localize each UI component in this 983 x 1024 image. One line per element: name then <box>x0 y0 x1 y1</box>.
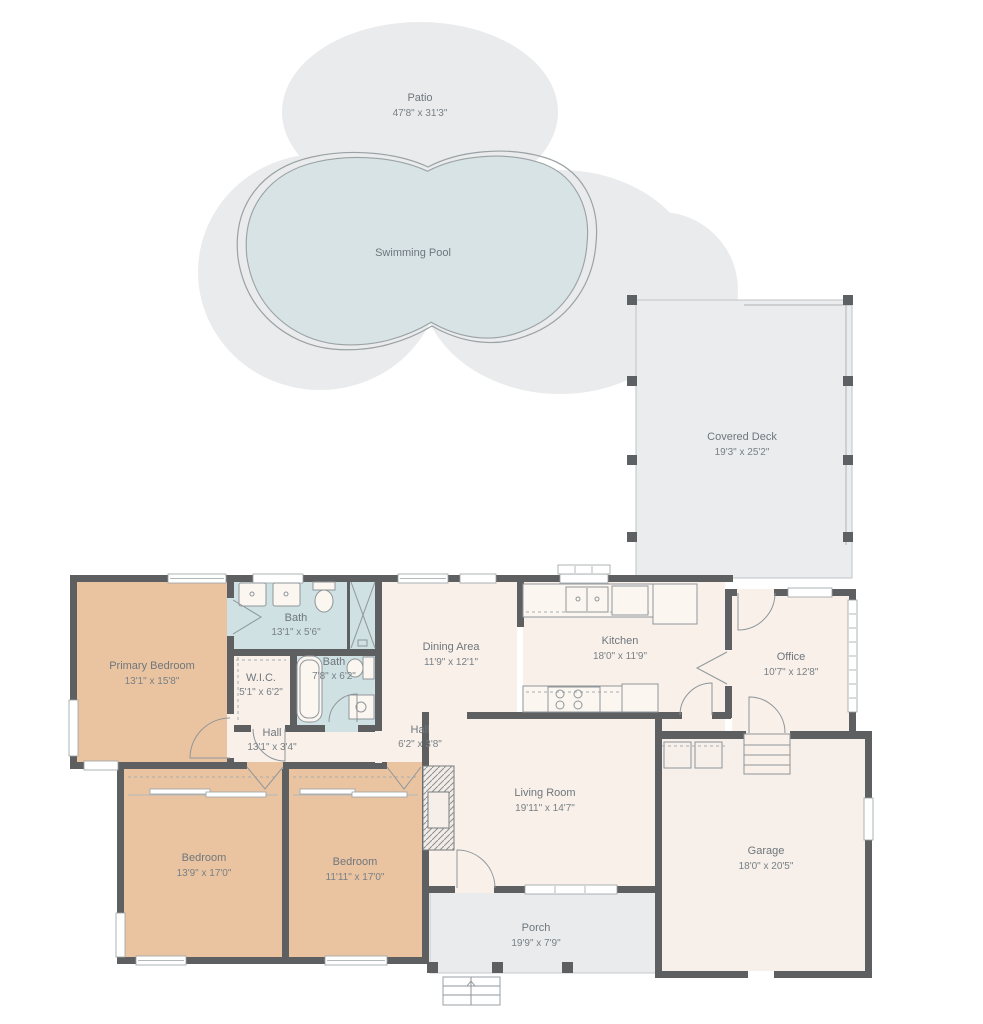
office-floor <box>732 596 849 731</box>
kitchen-fridge <box>653 584 697 624</box>
bedroom-right-dims: 11'11" x 17'0" <box>326 872 385 883</box>
garage-label: Garage <box>748 845 785 857</box>
hall-bedroom-dims: 13'1" x 3'4" <box>247 742 297 753</box>
porch-dims: 19'9" x 7'9" <box>511 938 561 949</box>
covered-deck-dims: 19'3" x 25'2" <box>715 447 770 458</box>
living-room-label: Living Room <box>514 787 575 799</box>
kitchen-dims: 18'0" x 11'9" <box>593 651 648 662</box>
bath-main-label: Bath <box>285 612 308 624</box>
living-room-dims: 19'11" x 14'7" <box>515 803 575 814</box>
office-dims: 10'7" x 12'8" <box>764 667 819 678</box>
patio-dims: 47'8" x 31'3" <box>393 108 448 119</box>
fireplace <box>423 766 454 850</box>
garage-stairs <box>744 734 790 774</box>
bedroom-left-dims: 13'9" x 17'0" <box>177 868 232 879</box>
floor-plan-svg: Patio 47'8" x 31'3" Swimming Pool Covere… <box>0 0 983 1024</box>
kitchen-appliance <box>612 586 648 615</box>
wic-dims: 5'1" x 6'2" <box>239 687 283 698</box>
hall-main-dims: 6'2" x 3'8" <box>398 739 442 750</box>
bedroom-left-label: Bedroom <box>182 852 227 864</box>
dining-area-dims: 11'9" x 12'1" <box>424 657 479 668</box>
kitchen-appliance-2 <box>622 684 658 712</box>
porch-label: Porch <box>522 922 551 934</box>
hall-bedroom-label: Hall <box>263 727 282 739</box>
dining-area-label: Dining Area <box>423 641 481 653</box>
bath-main-dims: 13'1" x 5'6" <box>271 627 321 638</box>
hall-main-floor <box>375 712 422 762</box>
porch-steps <box>443 977 500 1005</box>
wic-label: W.I.C. <box>246 672 276 684</box>
patio-label: Patio <box>407 92 432 104</box>
kitchen-counter-bottom <box>523 686 623 712</box>
covered-deck-label: Covered Deck <box>707 431 777 443</box>
garage-dims: 18'0" x 20'5" <box>739 861 794 872</box>
living-room-floor <box>428 712 656 886</box>
floor-plan-canvas: Patio 47'8" x 31'3" Swimming Pool Covere… <box>0 0 983 1024</box>
primary-bedroom-label: Primary Bedroom <box>109 660 195 672</box>
office-label: Office <box>777 651 806 663</box>
shower-partition <box>347 578 350 649</box>
hall-main-label: Hall <box>411 724 430 736</box>
primary-bedroom-floor <box>77 582 227 762</box>
primary-bedroom-dims: 13'1" x 15'8" <box>125 676 180 687</box>
bath-second-dims: 7'8" x 6'2" <box>312 671 356 682</box>
swimming-pool-label: Swimming Pool <box>375 247 451 259</box>
bath-second-label: Bath <box>323 656 346 668</box>
bedroom-right-label: Bedroom <box>333 856 378 868</box>
kitchen-label: Kitchen <box>602 635 639 647</box>
